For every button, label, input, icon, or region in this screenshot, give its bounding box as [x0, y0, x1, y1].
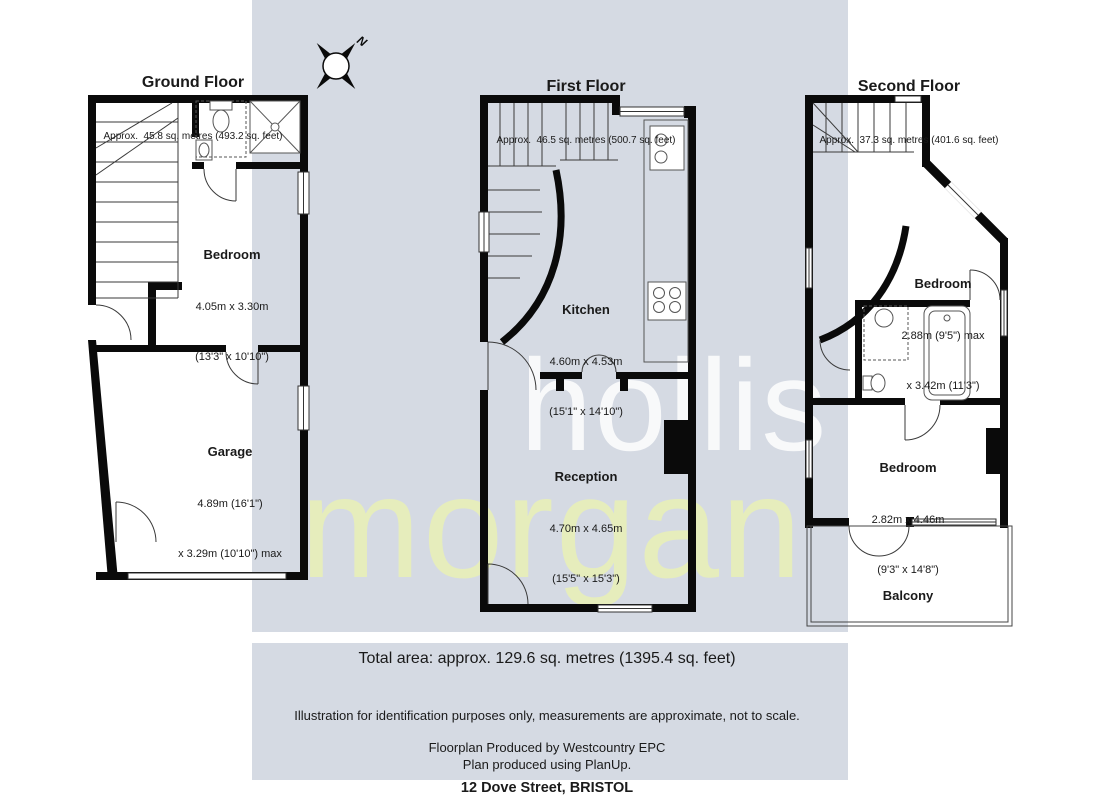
second-floor-heading: Second Floor Approx. 37.3 sq. metres (40… [820, 42, 999, 182]
ground-floor-area: Approx. 45.8 sq. metres (493.2 sq. feet) [104, 131, 283, 142]
compass-icon: N [313, 33, 370, 92]
compass-north-label: N [354, 33, 369, 50]
room-label-garage: Garage 4.89m (16'1") x 3.29m (10'10") ma… [178, 408, 282, 597]
disclaimer-text: Illustration for identification purposes… [294, 708, 800, 723]
room-label-balcony: Balcony [883, 552, 934, 641]
second-floor-area: Approx. 37.3 sq. metres (401.6 sq. feet) [820, 135, 999, 146]
floorplan-page: hollis morgan [0, 0, 1100, 800]
first-floor-area: Approx. 46.5 sq. metres (500.7 sq. feet) [497, 135, 676, 146]
first-floor-heading: First Floor Approx. 46.5 sq. metres (500… [497, 42, 676, 182]
produced-with-text: Plan produced using PlanUp. [463, 756, 631, 774]
room-label-reception: Reception 4.70m x 4.65m (15'5" x 15'3") [550, 433, 623, 622]
second-floor-title: Second Floor [820, 78, 999, 96]
diagonal-window [948, 185, 978, 215]
ground-floor-heading: Ground Floor Approx. 45.8 sq. metres (49… [104, 38, 283, 178]
ground-floor-title: Ground Floor [104, 74, 283, 92]
room-label-bedroom-gf: Bedroom 4.05m x 3.30m (13'3" x 10'10") [195, 211, 269, 400]
property-address: 12 Dove Street, BRISTOL [461, 780, 633, 796]
first-floor-title: First Floor [497, 78, 676, 96]
total-area-text: Total area: approx. 129.6 sq. metres (13… [358, 650, 735, 668]
produced-by-text: Floorplan Produced by Westcountry EPC [429, 739, 666, 757]
room-label-kitchen: Kitchen 4.60m x 4.53m (15'1" x 14'10") [549, 266, 623, 455]
room-label-bedroom-sf-1: Bedroom 2.88m (9'5") max x 3.42m (11'3") [901, 240, 984, 429]
